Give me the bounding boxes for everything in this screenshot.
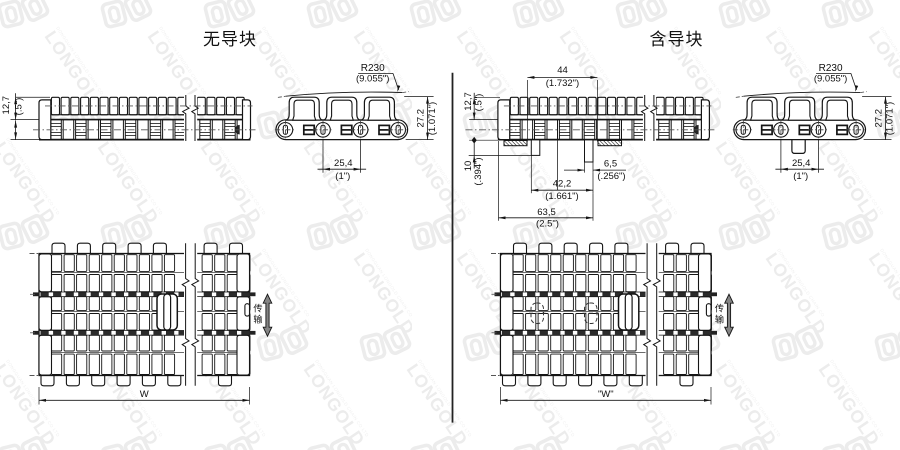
- svg-text:(.256"): (.256"): [597, 171, 625, 182]
- svg-text:(9.055"): (9.055"): [814, 73, 847, 84]
- svg-text:25,4: 25,4: [792, 158, 811, 169]
- svg-text:传: 传: [715, 303, 724, 314]
- svg-text:W: W: [140, 389, 149, 400]
- svg-text:(1.661"): (1.661"): [545, 191, 578, 202]
- svg-text:含导块: 含导块: [650, 30, 704, 49]
- svg-text:(.394"): (.394"): [473, 157, 484, 185]
- svg-text:(1.071"): (1.071"): [427, 102, 438, 135]
- svg-text:(1"): (1"): [335, 171, 350, 182]
- svg-text:27.2: 27.2: [415, 109, 426, 128]
- svg-text:(2.5"): (2.5"): [536, 219, 559, 230]
- svg-text:无导块: 无导块: [203, 30, 257, 49]
- svg-text:(1"): (1"): [793, 171, 808, 182]
- svg-text:(1.732"): (1.732"): [546, 78, 579, 89]
- svg-text:42,2: 42,2: [553, 178, 572, 189]
- svg-text:(9.055"): (9.055"): [356, 73, 389, 84]
- svg-text:传: 传: [253, 303, 262, 314]
- svg-text:输: 输: [253, 314, 262, 325]
- svg-text:(1.071"): (1.071"): [885, 102, 896, 135]
- svg-text:63,5: 63,5: [537, 207, 556, 218]
- svg-text:"W": "W": [598, 389, 614, 400]
- svg-text:25,4: 25,4: [334, 158, 353, 169]
- svg-text:(.5"): (.5"): [473, 94, 484, 112]
- svg-text:(.5"): (.5"): [14, 98, 25, 116]
- svg-text:27.2: 27.2: [873, 109, 884, 128]
- svg-text:输: 输: [715, 314, 724, 325]
- svg-text:44: 44: [557, 65, 568, 76]
- svg-text:12,7: 12,7: [1, 96, 12, 115]
- svg-text:10: 10: [463, 161, 474, 172]
- svg-text:6,5: 6,5: [604, 159, 617, 170]
